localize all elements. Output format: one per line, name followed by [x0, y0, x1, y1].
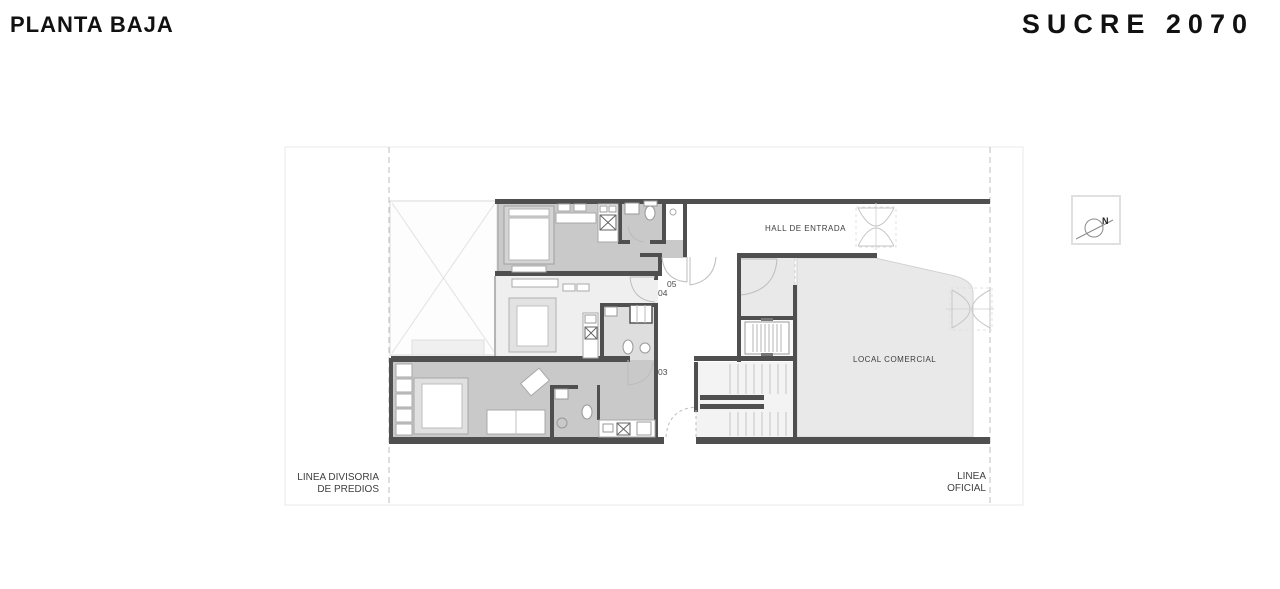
division-line-label-1: LINEA DIVISORIA: [297, 472, 379, 483]
bed-pillow: [509, 209, 549, 216]
stair-landing-wall: [700, 395, 764, 400]
bed: [509, 218, 549, 260]
chair: [563, 284, 575, 291]
cooktop-icon: [585, 327, 597, 339]
toilet: [623, 340, 633, 354]
toilet: [645, 206, 655, 220]
unit-04-number: 04: [658, 288, 668, 298]
elevator-icon: [745, 318, 789, 356]
sink: [585, 315, 596, 323]
division-line-label-2: DE PREDIOS: [317, 484, 379, 495]
sofa: [487, 410, 545, 434]
shower-icon: [630, 305, 652, 323]
chair: [574, 204, 586, 211]
toilet-tank: [644, 201, 657, 206]
closet: [396, 364, 412, 435]
official-line-label-2: OFICIAL: [947, 483, 986, 494]
dining-table: [556, 213, 596, 223]
terrace: [412, 340, 484, 355]
bed: [517, 306, 548, 346]
sink: [603, 424, 613, 432]
floor-plan-sheet: PLANTA BAJA SUCRE 2070: [0, 0, 1280, 589]
official-line-label-1: LINEA: [957, 471, 986, 482]
bath-sink-bowl: [640, 343, 650, 353]
fridge: [637, 422, 651, 435]
north-compass: N: [1072, 196, 1120, 244]
bath-sink: [605, 307, 617, 316]
sink: [600, 206, 607, 212]
north-label: N: [1102, 216, 1109, 226]
bench: [512, 266, 546, 272]
unit-03-number: 03: [658, 367, 668, 377]
hall-label: HALL DE ENTRADA: [765, 224, 846, 233]
bath-sink: [625, 203, 639, 214]
cooktop-icon: [617, 423, 630, 435]
cooktop-icon: [600, 215, 616, 230]
patio: [390, 201, 497, 355]
stair-landing-wall: [700, 404, 764, 409]
commercial-floor: [797, 258, 973, 437]
toilet: [582, 405, 592, 419]
floor-plan-drawing: HALL DE ENTRADA LOCAL COMERCIAL 05 04 03…: [0, 0, 1280, 589]
unit-05-number: 05: [667, 279, 677, 289]
chair: [577, 284, 589, 291]
entrance-double-door-icon: [856, 203, 896, 250]
sink: [609, 206, 616, 212]
bed: [422, 384, 462, 428]
bath-sink: [555, 389, 568, 399]
unit-05-shower-floor: [666, 202, 683, 240]
dining-table: [512, 279, 558, 287]
chair: [558, 204, 570, 211]
commercial-label: LOCAL COMERCIAL: [853, 355, 936, 364]
vestibule-floor: [739, 258, 795, 316]
